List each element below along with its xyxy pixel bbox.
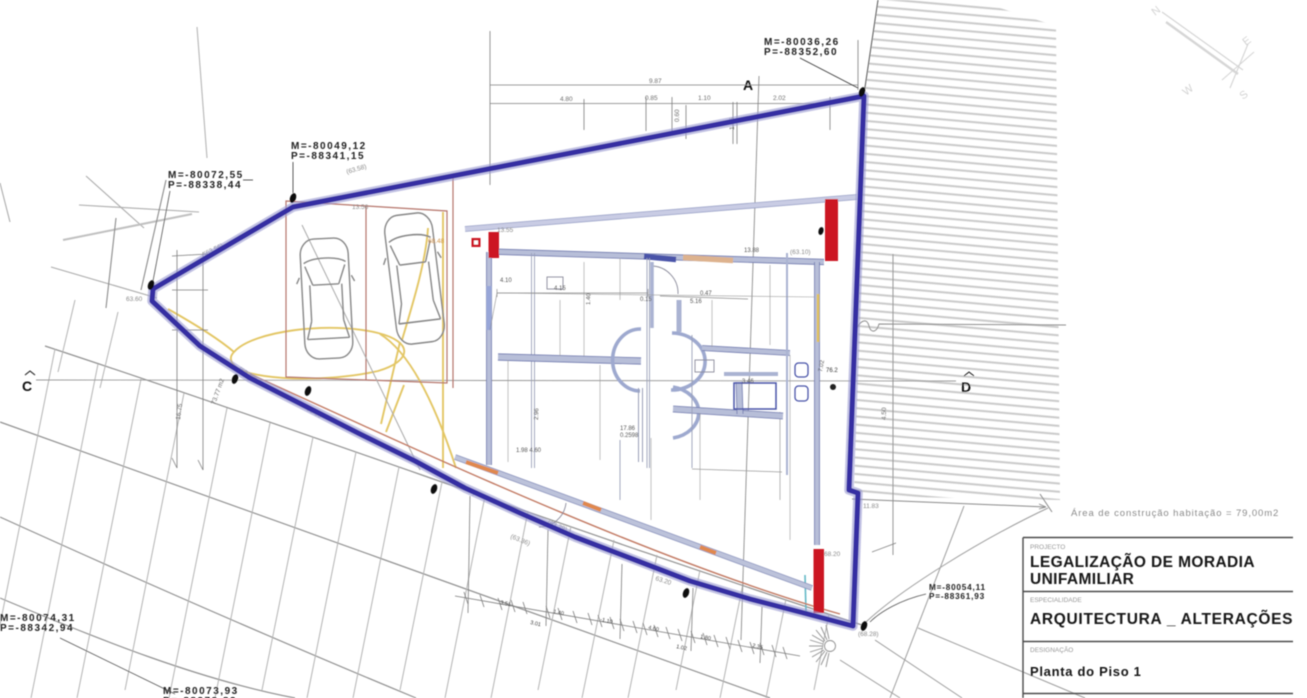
svg-text:P=-88338,44: P=-88338,44 — [168, 180, 242, 191]
svg-text:2.96: 2.96 — [534, 408, 540, 421]
svg-text:13.55: 13.55 — [497, 227, 514, 234]
svg-text:4.15: 4.15 — [554, 286, 566, 292]
svg-text:ESPECIALIDADE: ESPECIALIDADE — [1030, 597, 1082, 604]
svg-text:4.80: 4.80 — [560, 96, 573, 103]
svg-text:M=-80054,11: M=-80054,11 — [929, 583, 986, 592]
svg-text:1.98 4.60: 1.98 4.60 — [516, 448, 542, 454]
svg-text:1.10: 1.10 — [698, 95, 711, 102]
svg-text:(68.28): (68.28) — [858, 631, 879, 638]
svg-text:P=-88341,15: P=-88341,15 — [291, 151, 365, 162]
svg-text:17.86: 17.86 — [620, 426, 636, 432]
svg-text:5.16: 5.16 — [690, 299, 702, 305]
svg-text:UNIFAMILIAR: UNIFAMILIAR — [1030, 571, 1134, 588]
svg-text:C: C — [22, 378, 32, 394]
svg-text:3.46: 3.46 — [742, 379, 754, 385]
svg-text:0.15: 0.15 — [640, 297, 652, 303]
svg-text:DESIGNAÇÃO: DESIGNAÇÃO — [1030, 645, 1073, 654]
svg-text:0.60: 0.60 — [674, 109, 681, 122]
svg-text:Área de construção habitação =: Área de construção habitação = 79,00m2 — [1071, 508, 1279, 519]
svg-text:4.10: 4.10 — [500, 278, 512, 284]
svg-text:0.2598: 0.2598 — [620, 433, 639, 439]
svg-text:LEGALIZAÇÃO DE MORADIA: LEGALIZAÇÃO DE MORADIA — [1030, 553, 1255, 571]
svg-text:76.2: 76.2 — [826, 368, 838, 374]
svg-text:13.56: 13.56 — [352, 204, 369, 211]
svg-text:0.85: 0.85 — [645, 95, 658, 102]
svg-text:11.83: 11.83 — [863, 503, 879, 510]
svg-text:P=-88342,94: P=-88342,94 — [0, 623, 74, 634]
svg-text:2.02: 2.02 — [773, 95, 786, 102]
svg-text:PROJECTO: PROJECTO — [1030, 544, 1065, 551]
svg-text:P=-88361,93: P=-88361,93 — [929, 592, 985, 601]
svg-text:Planta do Piso 1: Planta do Piso 1 — [1030, 664, 1142, 679]
svg-text:0.47: 0.47 — [700, 291, 712, 297]
svg-text:ARQUITECTURA _ ALTERAÇÕES: ARQUITECTURA _ ALTERAÇÕES — [1030, 610, 1293, 628]
svg-text:68.48: 68.48 — [428, 238, 445, 245]
svg-text:D: D — [961, 379, 971, 395]
svg-text:63.60: 63.60 — [126, 296, 143, 303]
svg-text:(63.10): (63.10) — [790, 249, 811, 256]
svg-text:9.87: 9.87 — [649, 78, 662, 85]
svg-text:13.88: 13.88 — [744, 248, 760, 254]
svg-text:68.20: 68.20 — [824, 551, 841, 558]
svg-text:P=-88352,60: P=-88352,60 — [764, 47, 838, 58]
svg-text:4.50: 4.50 — [881, 407, 888, 420]
svg-text:1.40: 1.40 — [586, 293, 592, 306]
